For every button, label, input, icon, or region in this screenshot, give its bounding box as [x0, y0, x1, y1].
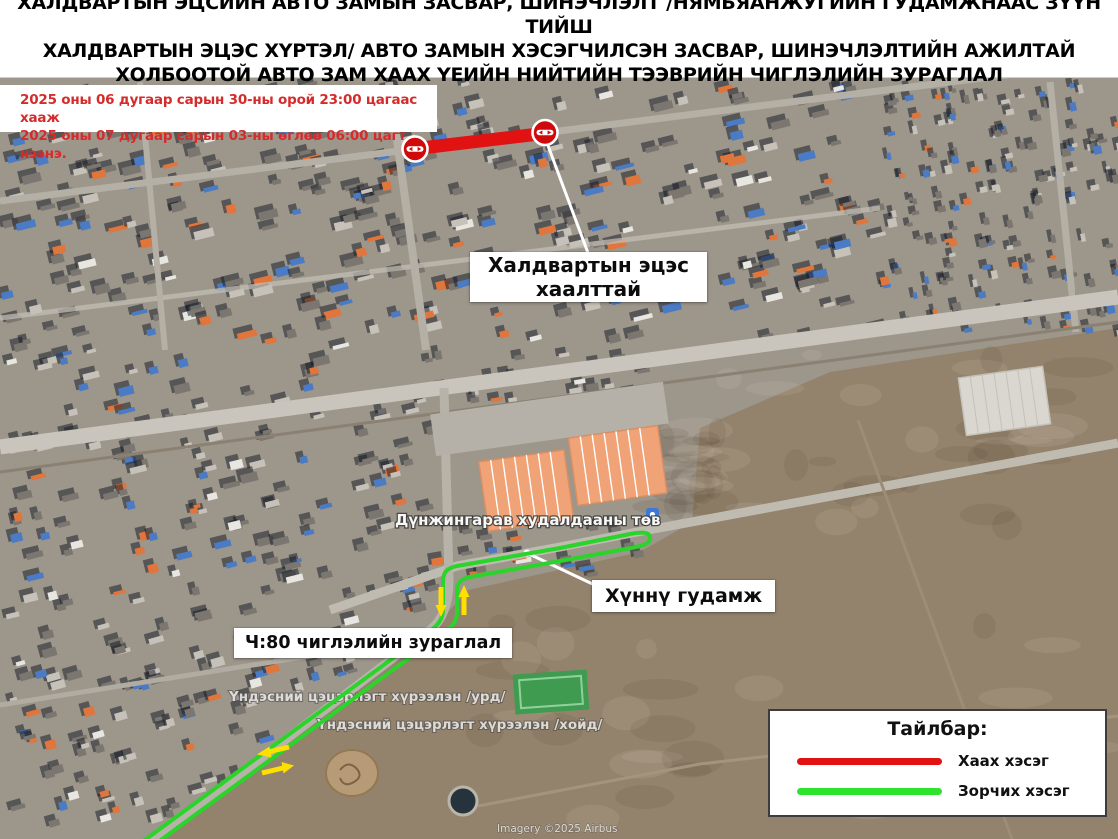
legend-box: Тайлбар: Хаах хэсэг Зорчих хэсэг: [768, 709, 1107, 817]
warehouse-building: [958, 366, 1050, 435]
title-line-1: ХАЛДВАРТЫН ЭЦСИЙН АВТО ЗАМЫН ЗАСВАР, ШИН…: [0, 0, 1118, 39]
stadium-field: [513, 669, 590, 714]
legend-item-detour: Зорчих хэсэг: [770, 782, 1105, 800]
callout-closed-section: Халдвартын эцэс хаалттай: [470, 252, 707, 302]
legend-title: Тайлбар:: [770, 718, 1105, 740]
title-line-3: ХОЛБООТОЙ АВТО ЗАМ ХААХ ҮЕИЙН НИЙТИЙН ТЭ…: [0, 63, 1118, 87]
map-label-mall: Дүнжингарав худалдааны төв: [395, 511, 661, 529]
roundabout-pond: [449, 787, 477, 815]
playground-park: [326, 750, 378, 796]
traffic-notice-infographic: Дүнжингарав худалдааны төв Үндэсний цэцэ…: [0, 0, 1118, 839]
map-label-park-north: Үндэсний цэцэрлэгт хүрээлэн /хойд/: [316, 717, 602, 733]
legend-item-closed: Хаах хэсэг: [770, 752, 1105, 770]
legend-label-detour: Зорчих хэсэг: [958, 782, 1070, 800]
closed-line-swatch: [797, 758, 942, 765]
closure-date-line-1: 2025 оны 06 дугаар сарын 30-ны орой 23:0…: [20, 91, 437, 127]
callout-route-map: Ч:80 чиглэлийн зураглал: [234, 628, 512, 658]
page-title: ХАЛДВАРТЫН ЭЦСИЙН АВТО ЗАМЫН ЗАСВАР, ШИН…: [0, 0, 1118, 78]
imagery-attribution: Imagery ©2025 Airbus: [497, 823, 618, 835]
legend-label-closed: Хаах хэсэг: [958, 752, 1049, 770]
callout-street-name: Хүннү гудамж: [592, 580, 775, 612]
detour-line-swatch: [797, 788, 942, 795]
callout-closed-line-1: Халдвартын эцэс: [488, 253, 689, 277]
no-entry-icon-right: [533, 120, 558, 145]
callout-closed-line-2: хаалттай: [536, 277, 641, 301]
title-line-2: ХАЛДВАРТЫН ЭЦЭС ХҮРТЭЛ/ АВТО ЗАМЫН ХЭСЭГ…: [0, 39, 1118, 63]
closure-date-line-2: 2025 оны 07 дугаар сарын 03-ны өглөө 06:…: [20, 127, 437, 163]
closure-dates-notice: 2025 оны 06 дугаар сарын 30-ны орой 23:0…: [0, 85, 437, 132]
